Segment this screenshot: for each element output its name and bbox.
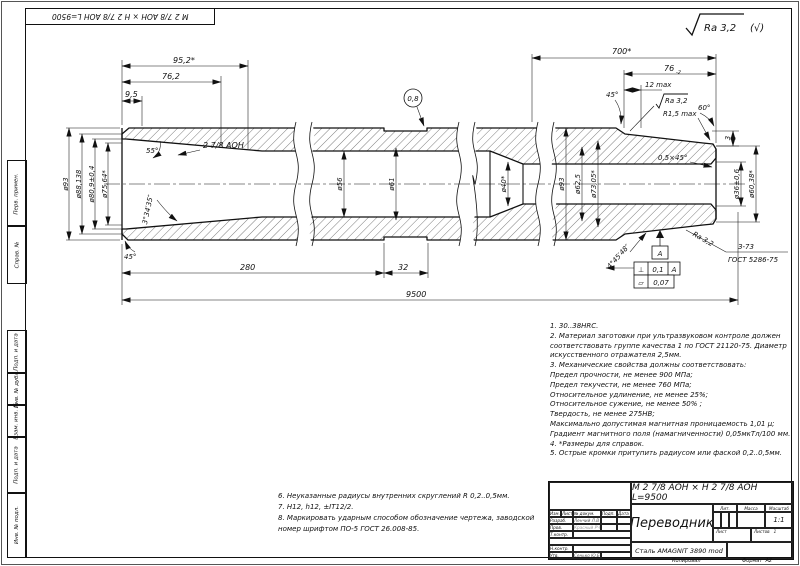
dim-95-2: 95,2*	[173, 56, 195, 65]
row-tkontr: Т.контр.	[549, 531, 573, 538]
dia-36: ø36±0,6	[733, 168, 741, 200]
dia-88-138: ø88,138	[75, 169, 83, 199]
dia-62-5: ø62,5	[574, 174, 582, 195]
title-block: Изм. Лист № докум. Подп. Дата Разраб. Ле…	[548, 481, 794, 560]
angle-60: 60°	[698, 104, 710, 112]
angle-4-45-48: 4°45′48″	[606, 243, 632, 271]
chamfer-0-5-45: 0,5×45°	[658, 154, 687, 162]
dia-61: ø61	[388, 177, 396, 191]
col-doc: № докум.	[573, 510, 601, 517]
dim-700: 700*	[612, 47, 631, 56]
dimension-labels: 95,2* 76,2 9,5 55° 2 7/8 АОН 3°34′35″ 45…	[62, 47, 779, 299]
flatness-icon: ▱	[638, 279, 644, 287]
drawing-sheet: М 2 7/8 АОН × Н 2 7/8 АОН L=9500 Ra 3,2 …	[0, 0, 800, 566]
dia-75-64: ø75,64*	[101, 170, 109, 199]
format-label: Формат А2	[742, 558, 772, 564]
thread-left-label: 2 7/8 АОН	[203, 141, 244, 150]
part-designation: М 2 7/8 АОН × Н 2 7/8 АОН L=9500	[631, 482, 793, 504]
sheets-value: 1	[774, 529, 777, 534]
row-razrab: Разраб.	[549, 517, 573, 524]
scale-value: 1:1	[765, 512, 793, 528]
scale-label: Масштаб	[765, 504, 793, 512]
row-prov: Пров.	[549, 524, 573, 531]
technical-requirements: 1. 30..38HRC. 2. Материал заготовки при …	[550, 322, 790, 459]
utv-name: Сенько Ю.Е	[573, 552, 601, 559]
tol-perp-datum: А	[671, 266, 677, 274]
part-material: Сталь AMAGNIT 3890 mod	[631, 542, 727, 559]
sheet-label: Лист	[713, 528, 751, 542]
part-lower-half	[122, 204, 716, 240]
dim-280: 280	[240, 263, 255, 272]
dim-76-right-tol: -2	[676, 70, 681, 76]
dim-3: 3	[724, 136, 732, 140]
dim-12-max: 12 max	[645, 81, 672, 89]
thread-right-designation: З-73	[738, 243, 754, 251]
format-value: А2	[765, 558, 772, 564]
dia-93-left: ø93	[62, 177, 70, 191]
tol-flat-value: 0,07	[653, 279, 669, 287]
dim-9500: 9500	[406, 290, 426, 299]
dia-56: ø56	[336, 177, 344, 192]
sheets-cell: Листов 1	[751, 528, 793, 542]
dia-40: ø40*	[500, 175, 508, 193]
balloon-value: 0,8	[407, 95, 419, 103]
angle-3-34-35: 3°34′35″	[141, 194, 155, 225]
dim-76-2-left: 76,2	[162, 72, 180, 81]
col-sign: Подп.	[601, 510, 617, 517]
angle-45-bottom-left: 45°	[124, 253, 136, 261]
thread-right-gost: ГОСТ 5286-75	[728, 256, 779, 264]
dim-32: 32	[398, 263, 408, 272]
row-utv: Утв.	[549, 552, 573, 559]
ra32-top: Ra 3,2	[665, 97, 688, 105]
ra32-thread: Ra 3,2	[691, 230, 715, 248]
dia-73-05: ø73,05*	[590, 170, 598, 199]
dia-93-right: ø93	[558, 177, 566, 191]
r1-5-max: R1,5 max	[663, 110, 697, 118]
angle-45-right: 45°	[606, 91, 618, 99]
revision-grid	[549, 482, 631, 510]
dim-76-right: 76	[664, 64, 674, 73]
mass-label: Масса	[737, 504, 765, 512]
notes-bottom: 6. Неуказанные радиусы внутренних скругл…	[278, 491, 538, 535]
copied-label: Копировал	[672, 558, 701, 564]
datum-letter: А	[657, 250, 663, 258]
part-name: Переводник	[631, 504, 713, 542]
col-izm: Изм.	[549, 510, 561, 517]
company-cell	[727, 542, 793, 559]
dia-60-38: ø60,38*	[748, 170, 756, 199]
angle-55: 55°	[146, 147, 158, 155]
tol-perp-value: 0,1	[652, 266, 663, 274]
col-list: Лист	[561, 510, 573, 517]
dim-9-5: 9,5	[125, 90, 138, 99]
row-nkontr: Н.контр.	[549, 545, 573, 552]
col-date: Дата	[617, 510, 631, 517]
dia-80-9: ø80,9±0,4	[88, 166, 96, 204]
mass-value	[737, 512, 765, 528]
lit-label: Лит.	[713, 504, 737, 512]
prov-name: Красный РЧ	[573, 524, 601, 531]
perpendicularity-icon: ⊥	[638, 266, 644, 274]
razrab-name: Ленчий Л.В	[573, 517, 601, 524]
